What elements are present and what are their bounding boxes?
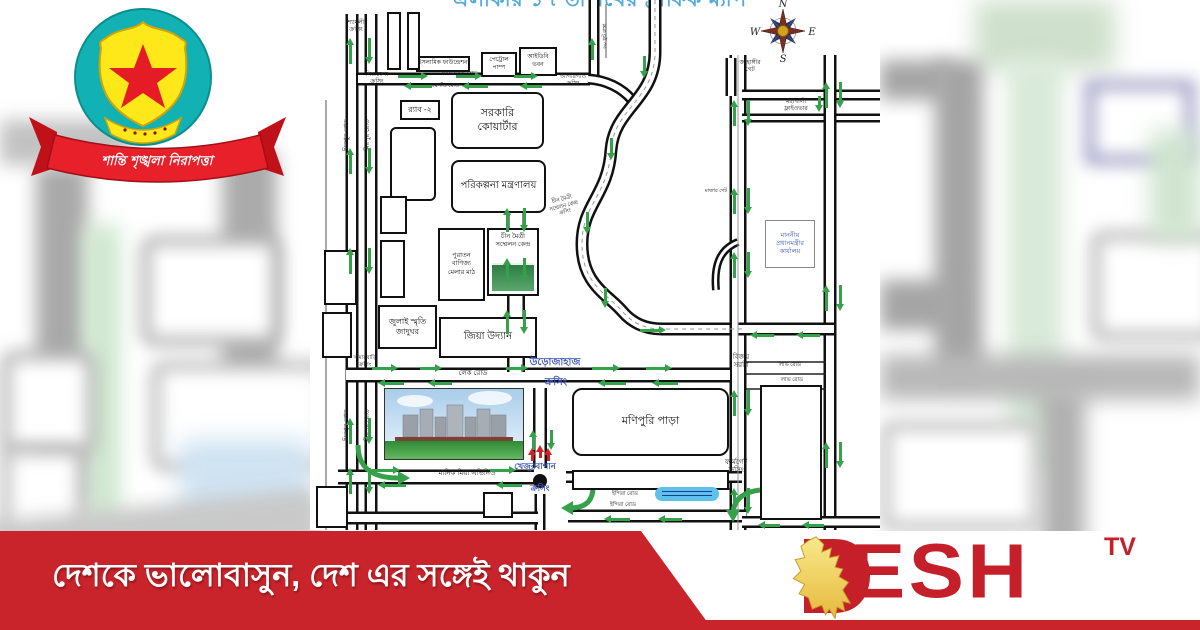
traffic-arrow-down bbox=[836, 285, 845, 311]
traffic-arrow-up bbox=[503, 208, 512, 232]
traffic-arrow-down bbox=[836, 82, 845, 108]
map-road-label: লাভ রোড bbox=[771, 362, 809, 369]
traffic-arrow-up bbox=[503, 310, 512, 334]
traffic-arrow-up bbox=[346, 148, 355, 174]
map-box-govt-quarters: সরকারি কোয়ার্টার bbox=[451, 92, 544, 149]
map-road-label: উড়োজাহাজ bbox=[523, 357, 587, 369]
blur-block bbox=[880, 420, 1042, 532]
traffic-arrow-left bbox=[428, 379, 452, 388]
traffic-arrow-left bbox=[658, 515, 682, 524]
traffic-arrow-left bbox=[378, 379, 404, 388]
traffic-arrow-down bbox=[815, 96, 824, 112]
map-road-label: জাহাঙ্গীর গেট bbox=[730, 60, 770, 74]
traffic-arrow-right bbox=[490, 466, 516, 475]
traffic-arrow-down bbox=[744, 488, 753, 514]
map-box-july-museum: জুলাই স্মৃতি জাদুঘর bbox=[378, 305, 437, 349]
parliament-photo bbox=[384, 388, 524, 460]
map-box-tall-2 bbox=[407, 12, 420, 70]
map-box-planning-ministry: পরিকল্পনা মন্ত্রণালয় bbox=[451, 160, 546, 213]
map-road-label: লেক রোড bbox=[446, 370, 500, 378]
map-road-label: ইন্দিরা রোড bbox=[604, 491, 646, 498]
map-box-tejgaon-block bbox=[760, 385, 822, 520]
logo-motto: শান্তি শৃঙ্খলা নিরাপত্তা bbox=[102, 152, 216, 170]
traffic-arrow-down bbox=[520, 310, 529, 334]
traffic-arrow-left bbox=[652, 379, 678, 388]
traffic-arrow-down bbox=[365, 148, 374, 174]
traffic-arrow-up bbox=[822, 285, 831, 311]
traffic-arrow-up bbox=[503, 258, 512, 282]
traffic-arrow-left bbox=[462, 82, 488, 91]
traffic-arrow-down bbox=[601, 288, 610, 308]
traffic-arrow-right bbox=[398, 72, 428, 81]
traffic-arrow-up bbox=[346, 468, 355, 494]
traffic-arrow-left bbox=[796, 331, 820, 340]
blur-road-bar bbox=[935, 60, 983, 380]
traffic-arrow-down bbox=[520, 208, 529, 232]
traffic-arrow-right bbox=[640, 326, 666, 335]
map-box-islamic-foundation: ইসলামিক ফাউন্ডেশন bbox=[416, 56, 470, 72]
map-road-label: বিজয় সরণি bbox=[726, 354, 756, 371]
map-box-small-b bbox=[380, 240, 405, 298]
map-road-label: ক্রসিং bbox=[536, 377, 576, 389]
map-road-label: শিশুমেলা ক্রসিং bbox=[357, 72, 397, 86]
traffic-arrow-down bbox=[744, 100, 753, 126]
traffic-arrow-right bbox=[646, 364, 672, 373]
traffic-arrow-down bbox=[640, 56, 649, 78]
traffic-arrow-right bbox=[456, 72, 482, 81]
compass-e: E bbox=[807, 27, 816, 38]
blur-block bbox=[0, 350, 97, 457]
traffic-arrow-down bbox=[744, 390, 753, 416]
traffic-arrow-down bbox=[365, 418, 374, 444]
map-box-small-d bbox=[322, 312, 352, 358]
traffic-arrow-left bbox=[802, 521, 824, 530]
map-road-label: আগারগাঁও ক্রসিং bbox=[551, 74, 595, 88]
map-road-label: মহাখালী ফ্লাইওভার bbox=[773, 99, 819, 113]
blur-road-corner bbox=[880, 60, 950, 100]
traffic-arrow-left bbox=[496, 481, 522, 490]
traffic-arrow-down bbox=[836, 442, 845, 468]
traffic-arrow-left bbox=[520, 82, 542, 91]
compass-n: N bbox=[778, 0, 789, 10]
map-box-rab-2: র‍্যাব -২ bbox=[400, 100, 440, 120]
traffic-arrow-up bbox=[346, 248, 355, 274]
map-road-label: মাজার গেট bbox=[700, 188, 732, 194]
blur-road-corner bbox=[880, 280, 955, 330]
blur-block bbox=[140, 235, 282, 347]
traffic-arrow-left bbox=[604, 515, 630, 524]
traffic-arrow-left bbox=[758, 521, 780, 530]
blur-green-smudge bbox=[1150, 130, 1200, 240]
traffic-arrow-left bbox=[404, 82, 432, 91]
red-arrow-up bbox=[544, 448, 553, 461]
traffic-arrow-up bbox=[346, 418, 355, 444]
traffic-arrow-down bbox=[365, 248, 374, 274]
map-road-label: লাভ রোড bbox=[773, 377, 811, 384]
map-box-btv-block bbox=[390, 127, 436, 201]
traffic-arrow-down bbox=[547, 430, 556, 450]
map-road-label: শ্যামলী ক্রসিং bbox=[336, 20, 376, 34]
highlighted-route-note bbox=[655, 487, 719, 501]
map-box-chin-maitree: চীন মৈত্রী সম্মেলন কেন্দ্র bbox=[487, 228, 539, 296]
desh-letters: ESH bbox=[850, 527, 1030, 615]
dmp-police-logo: শান্তি শৃঙ্খলা নিরাপত্তা bbox=[25, 2, 290, 198]
traffic-arrow-down bbox=[744, 252, 753, 278]
traffic-arrow-up bbox=[730, 390, 739, 416]
map-box-pm-office: মাননীয় প্রধানমন্ত্রীর কার্যালয় bbox=[765, 220, 815, 268]
traffic-arrow-up bbox=[730, 488, 739, 514]
traffic-arrow-right bbox=[420, 364, 442, 373]
traffic-arrow-up bbox=[822, 442, 831, 468]
desh-tv-superscript: TV bbox=[1104, 533, 1136, 562]
traffic-arrow-up bbox=[730, 188, 739, 214]
map-road-label: ইন্দিরা রোড bbox=[602, 502, 644, 509]
social-card: { "colors":{"arrow_green":"#35a14a","arr… bbox=[0, 0, 1200, 630]
traffic-arrow-down bbox=[520, 258, 529, 282]
map-box-small-a bbox=[380, 196, 407, 234]
traffic-arrow-right bbox=[372, 466, 400, 475]
map-box-school-block bbox=[483, 492, 513, 518]
compass-w: W bbox=[750, 27, 761, 38]
traffic-map: এলাকার ১৭ তারিখের ট্রাফিক ম্যাপ bbox=[310, 0, 880, 530]
map-road-label: ৬০ ফুট রাস্তা bbox=[602, 14, 608, 58]
traffic-arrow-right bbox=[514, 72, 538, 81]
map-box-small-e bbox=[316, 486, 348, 528]
map-road-label: খেজুরবাগান bbox=[508, 461, 562, 471]
map-road-label: ক্রসিং bbox=[522, 483, 558, 493]
traffic-arrow-up bbox=[730, 252, 739, 278]
traffic-arrow-left bbox=[378, 481, 406, 490]
traffic-arrow-down bbox=[365, 38, 374, 64]
traffic-arrow-down bbox=[607, 138, 616, 160]
traffic-arrow-right bbox=[506, 364, 528, 373]
traffic-arrow-up bbox=[588, 38, 597, 60]
traffic-arrow-left bbox=[750, 331, 774, 340]
traffic-arrow-right bbox=[592, 364, 620, 373]
traffic-arrow-down bbox=[583, 212, 592, 234]
map-box-tall-1 bbox=[387, 12, 401, 70]
map-box-trade-fair-ground: পুরাতন বাণিজ্য মেলার মাঠ bbox=[438, 228, 485, 301]
compass-rose: N S W E bbox=[750, 0, 816, 65]
map-box-monipuri-para: মণিপুরি পাড়া bbox=[572, 388, 729, 456]
map-road-label: ফার্মগেট ক্রসিং bbox=[715, 459, 757, 476]
traffic-arrow-up bbox=[730, 100, 739, 126]
traffic-arrow-down bbox=[744, 188, 753, 214]
traffic-arrow-left bbox=[598, 379, 626, 388]
banner-red-underline bbox=[648, 620, 1200, 630]
banner-tagline: দেশকে ভালোবাসুন, দেশ এর সঙ্গেই থাকুন bbox=[52, 552, 652, 598]
blur-block bbox=[1090, 230, 1200, 342]
compass-s: S bbox=[780, 54, 787, 65]
traffic-arrow-right bbox=[372, 364, 398, 373]
traffic-arrow-up bbox=[346, 38, 355, 64]
